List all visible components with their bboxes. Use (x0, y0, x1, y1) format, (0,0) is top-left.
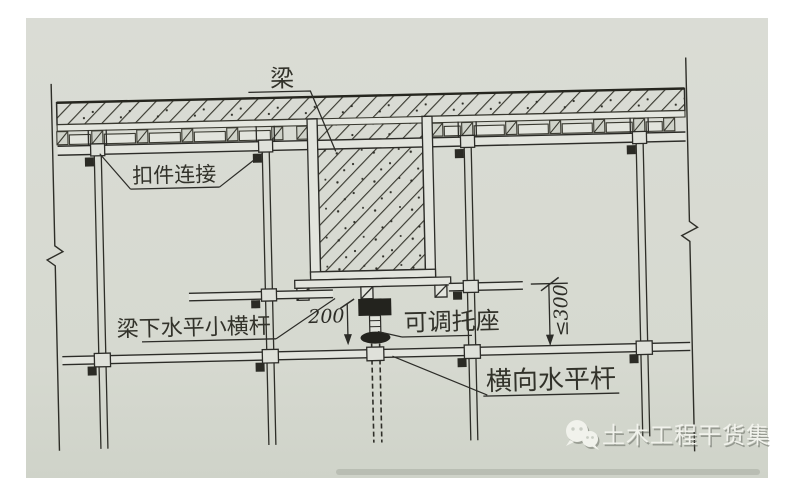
label-adjustable-bracket-text: 可调托座 (403, 307, 500, 337)
dimension-300-value: ≤300 (550, 284, 573, 337)
scanned-diagram-photo: 200 ≤300 梁 扣件连接 梁下水平小横杆 (0, 0, 804, 488)
label-transverse-bar-text: 横向水平杆 (486, 364, 617, 397)
label-coupler-connection-text: 扣件连接 (132, 162, 217, 188)
label-under-beam-ledger-text: 梁下水平小横杆 (116, 314, 271, 342)
diagram-canvas: 200 ≤300 梁 扣件连接 梁下水平小横杆 (0, 0, 804, 488)
dimension-200-value: 200 (307, 305, 345, 328)
scan-shadow (336, 469, 760, 475)
watermark-text: 土木工程干货集 (602, 423, 770, 449)
label-beam-text: 梁 (270, 64, 295, 93)
